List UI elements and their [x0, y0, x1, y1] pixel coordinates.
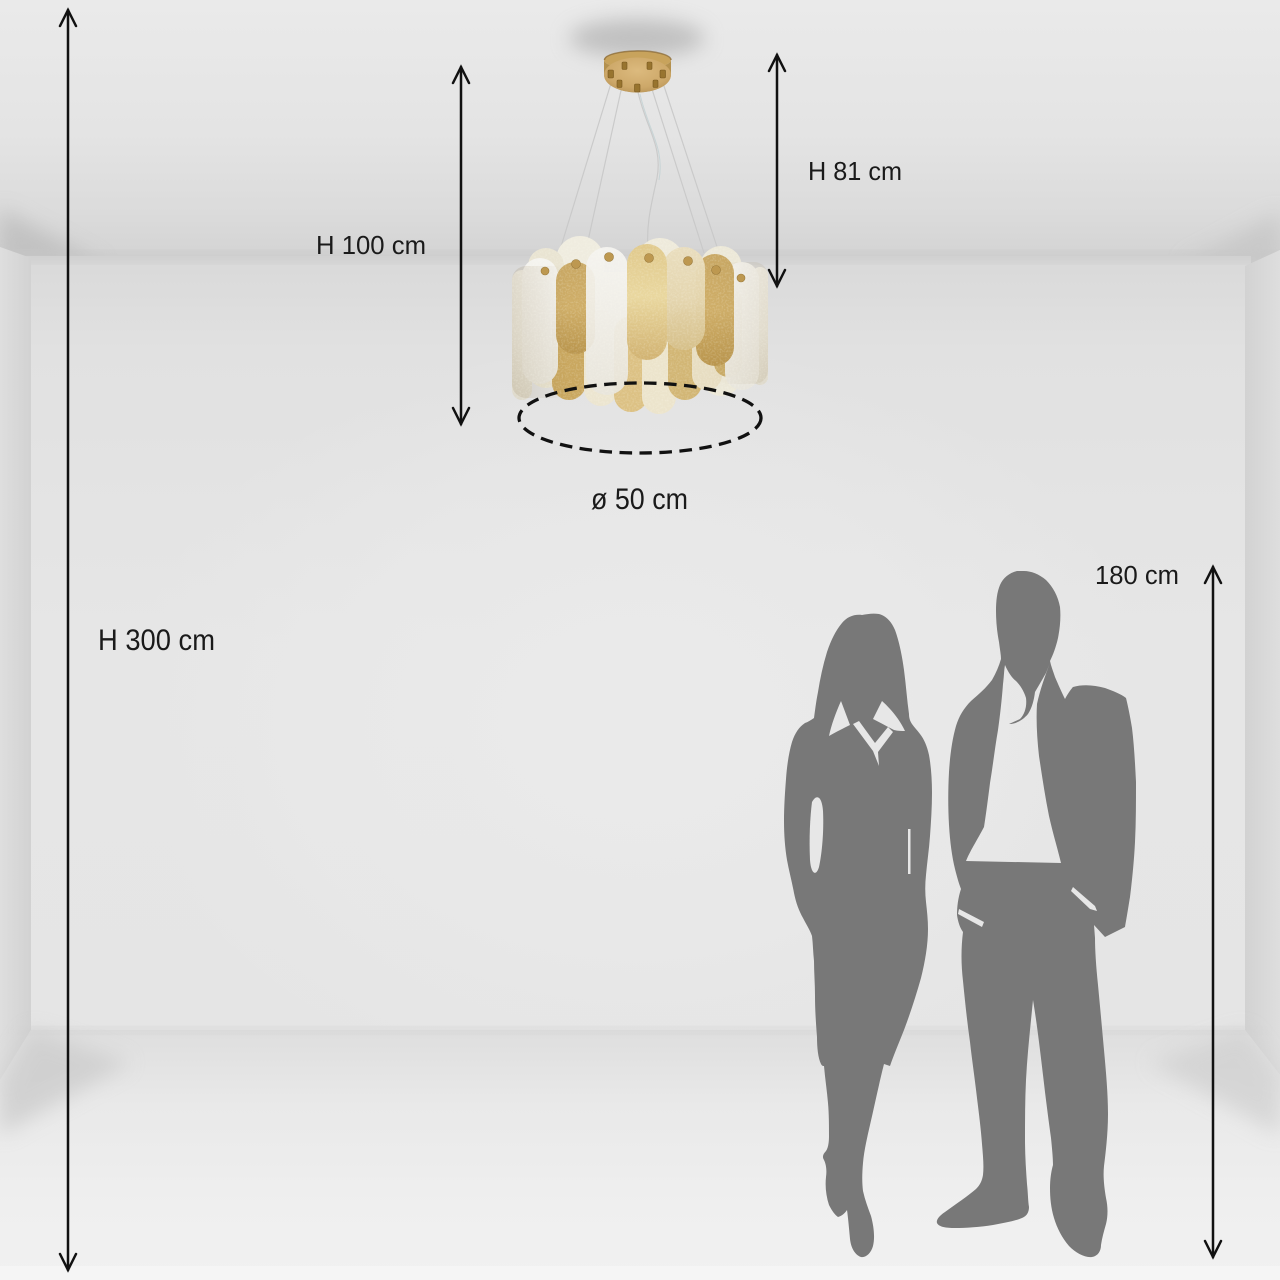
svg-text:H 100 cm: H 100 cm: [316, 230, 426, 260]
svg-text:ø 50 cm: ø 50 cm: [591, 483, 688, 516]
svg-text:H 81 cm: H 81 cm: [808, 156, 902, 186]
svg-text:H 300 cm: H 300 cm: [98, 624, 215, 657]
svg-text:180 cm: 180 cm: [1095, 562, 1179, 590]
